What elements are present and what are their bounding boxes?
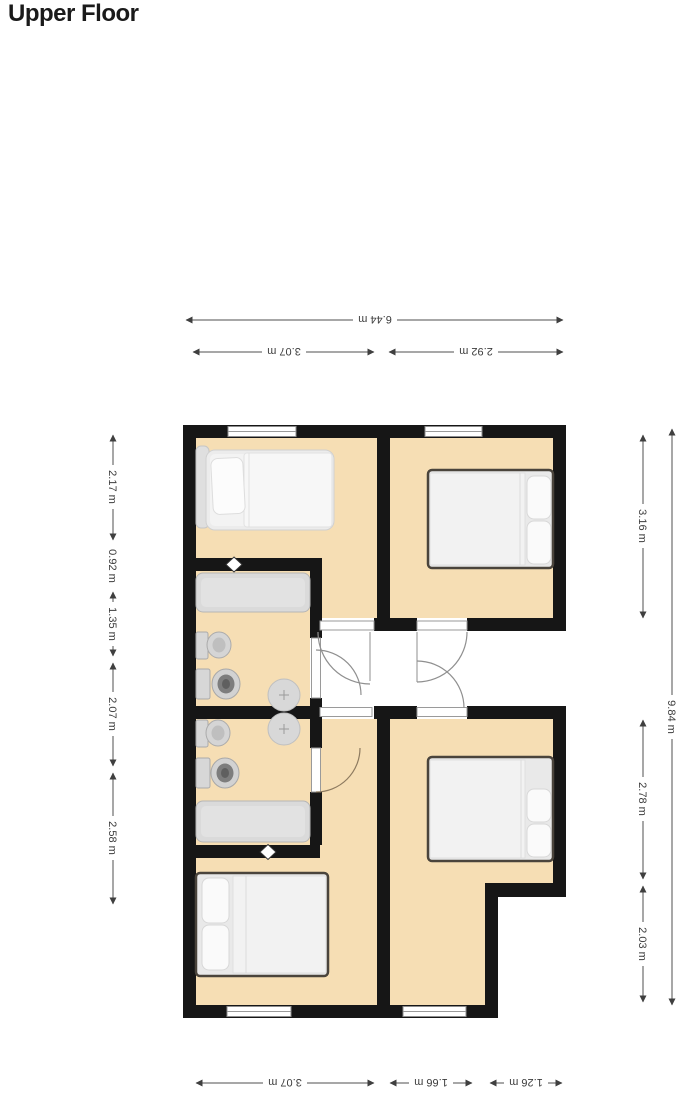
window [403, 1007, 466, 1017]
dimension-label: 6.44 m [358, 313, 392, 325]
wall-right-upper [553, 425, 566, 631]
dimension-label: 2.17 m [106, 470, 118, 504]
bidet [196, 720, 230, 747]
dimension-label: 2.78 m [636, 782, 648, 816]
dimension-label: 2.92 m [459, 345, 493, 357]
door-frame [320, 708, 372, 717]
wall-bedroom1-bathroom [183, 558, 322, 571]
wall-left [183, 425, 196, 1018]
bathtub [196, 573, 310, 612]
wall-corridor-bottom-2 [467, 706, 566, 719]
dimension-label: 9.84 m [665, 700, 677, 734]
floor-plan-canvas: 6.44 m 3.07 m 2.92 m 3.07 m 1.66 m 1.26 … [0, 0, 683, 1096]
washbasin [268, 679, 300, 711]
door-swing-arc [318, 632, 370, 684]
double-bed [428, 470, 553, 568]
wall-corridor-top-1 [374, 618, 417, 631]
dimension-label: 3.07 m [268, 1076, 302, 1088]
double-bed [428, 757, 553, 861]
toilet [196, 669, 240, 699]
door-frame [312, 638, 321, 698]
window [227, 1007, 291, 1017]
wall-right-lower [553, 706, 566, 897]
door-frame [417, 621, 467, 630]
single-bed [196, 446, 334, 530]
dimension-label: 0.92 m [106, 549, 118, 583]
wall-bathroom-right-d [310, 792, 322, 845]
window [425, 427, 482, 437]
toilet [196, 758, 239, 788]
window [228, 427, 296, 437]
bidet [196, 632, 231, 659]
floor-plan-page: Upper Floor [0, 0, 683, 1096]
washbasin [268, 713, 300, 745]
dimension-label: 3.16 m [636, 509, 648, 543]
pillow [527, 521, 551, 564]
pillow [211, 457, 246, 515]
wall-between-bathrooms [183, 706, 322, 719]
pillow [527, 824, 551, 857]
wall-divider-bottom [377, 706, 390, 1018]
double-bed [196, 873, 328, 976]
door-frame [320, 621, 374, 630]
dimension-label: 1.35 m [106, 607, 118, 641]
bathtub [196, 801, 310, 842]
wall-bathroom-right-c [310, 719, 322, 748]
wall-right-inset [485, 883, 498, 1018]
pillow [202, 878, 229, 923]
wall-corridor-bottom-1 [374, 706, 417, 719]
door-swing-arc [417, 632, 467, 682]
dimension-label: 2.58 m [106, 821, 118, 855]
door-swing-arc [316, 650, 361, 695]
dimension-label: 2.03 m [636, 927, 648, 961]
door-frame [417, 708, 467, 717]
wall-corridor-top-2 [467, 618, 566, 631]
wall-divider-top [377, 425, 390, 631]
dimension-label: 3.07 m [267, 345, 301, 357]
dimension-label: 1.26 m [509, 1076, 543, 1088]
dimension-label: 1.66 m [414, 1076, 448, 1088]
door-swing-arc [417, 661, 464, 708]
pillow [527, 789, 551, 822]
wall-bathroom-bedroom4 [183, 845, 320, 858]
pillow [202, 925, 229, 970]
door-frame [312, 748, 321, 792]
pillow [527, 476, 551, 519]
dimension-label: 2.07 m [106, 697, 118, 731]
